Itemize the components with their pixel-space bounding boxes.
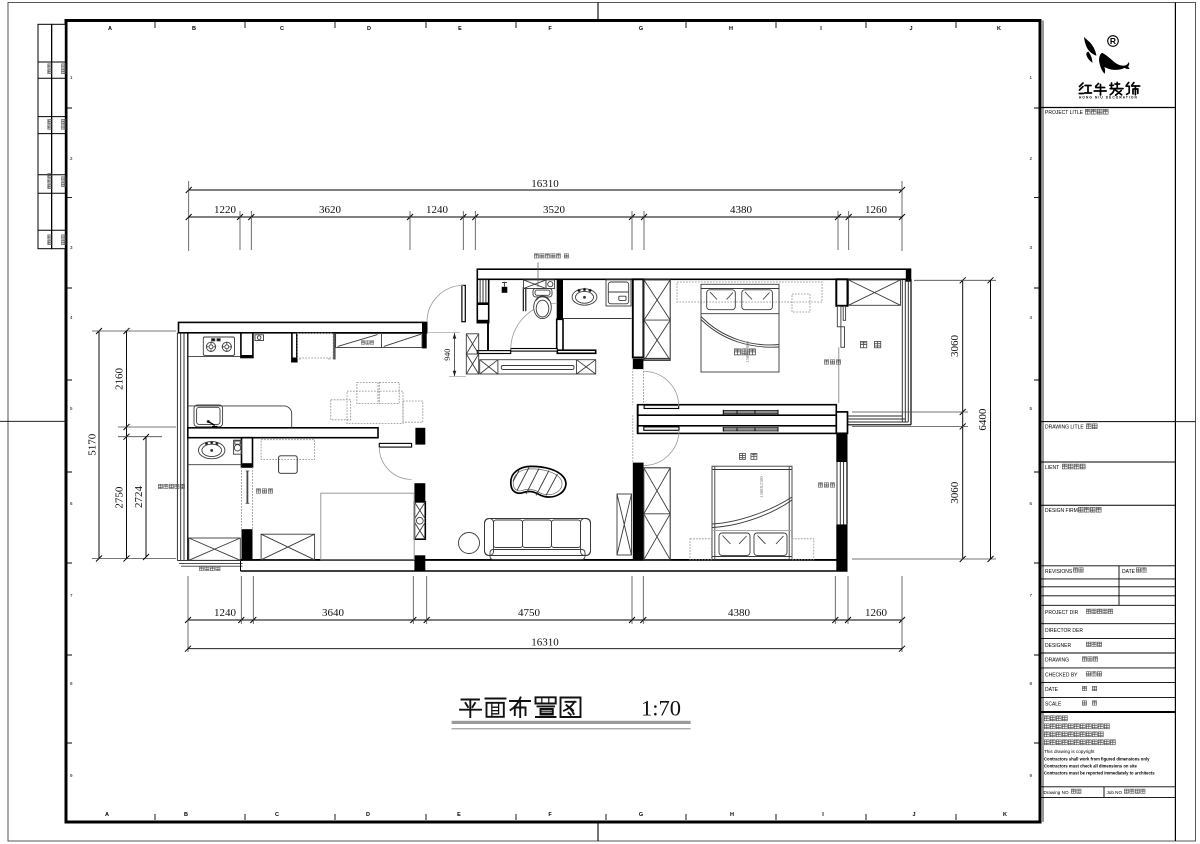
svg-text:5: 5 [1029, 406, 1032, 411]
svg-text:I: I [822, 812, 824, 818]
svg-text:8: 8 [1029, 681, 1032, 686]
svg-text:Contractors shall work from fi: Contractors shall work from figured dime… [1044, 757, 1150, 762]
svg-text:Drawing NO: Drawing NO [1044, 790, 1069, 795]
svg-text:3: 3 [1029, 245, 1032, 250]
svg-text:A: A [105, 812, 109, 818]
svg-text:16310: 16310 [531, 637, 559, 649]
svg-text:J: J [912, 812, 915, 818]
svg-text:Job NO: Job NO [1107, 790, 1123, 795]
svg-text:4: 4 [1029, 315, 1032, 320]
svg-text:1260: 1260 [865, 607, 888, 619]
svg-text:1500X2100: 1500X2100 [759, 476, 764, 498]
svg-text:3520: 3520 [543, 204, 566, 216]
svg-text:5170: 5170 [87, 433, 99, 456]
svg-text:4750: 4750 [518, 607, 541, 619]
svg-text:SCALE: SCALE [1045, 702, 1062, 708]
svg-text:940: 940 [443, 349, 452, 361]
svg-text:16310: 16310 [531, 178, 559, 190]
svg-text:F: F [548, 26, 552, 32]
svg-text:H: H [729, 26, 733, 32]
svg-text:D: D [366, 812, 370, 818]
svg-text:7: 7 [70, 593, 73, 598]
svg-text:1: 1 [1029, 75, 1032, 80]
svg-text:DIRECTOR DER: DIRECTOR DER [1045, 628, 1083, 634]
svg-text:6: 6 [70, 501, 73, 506]
svg-text:R: R [1110, 36, 1116, 46]
svg-text:1260: 1260 [865, 204, 888, 216]
svg-text:DESIGNER: DESIGNER [1045, 643, 1072, 649]
svg-text:PROJECT DIR: PROJECT DIR [1045, 610, 1079, 616]
svg-text:G: G [639, 26, 643, 32]
svg-text:2: 2 [1029, 156, 1032, 161]
svg-text:1220: 1220 [214, 204, 237, 216]
svg-text:LIENT: LIENT [1045, 465, 1059, 471]
svg-text:1240: 1240 [426, 204, 449, 216]
svg-text:CHECKED BY: CHECKED BY [1045, 673, 1078, 679]
svg-text:8: 8 [70, 681, 73, 686]
svg-text:2750: 2750 [114, 486, 126, 509]
svg-text:C: C [275, 812, 279, 818]
svg-text:1500X2000: 1500X2000 [745, 341, 750, 363]
svg-text:1240: 1240 [214, 607, 237, 619]
svg-text:D: D [367, 26, 371, 32]
svg-text:6400: 6400 [977, 408, 989, 431]
svg-text:DESIGN FIRM: DESIGN FIRM [1045, 508, 1078, 514]
svg-text:2160: 2160 [114, 368, 126, 391]
svg-text:K: K [997, 26, 1001, 32]
svg-text:DRAWING: DRAWING [1045, 658, 1069, 664]
svg-text:E: E [457, 812, 461, 818]
svg-text:Contractors must check all dim: Contractors must check all dimensions on… [1044, 764, 1138, 769]
svg-text:H: H [730, 812, 734, 818]
svg-text:1:70: 1:70 [641, 696, 681, 721]
svg-text:1: 1 [70, 75, 73, 80]
svg-text:A: A [108, 26, 112, 32]
svg-text:F: F [548, 812, 552, 818]
svg-text:9: 9 [1029, 773, 1032, 778]
svg-text:HONG NIU DECORATION: HONG NIU DECORATION [1079, 95, 1138, 99]
svg-text:2: 2 [70, 156, 73, 161]
svg-text:DRAWING LITLE: DRAWING LITLE [1045, 425, 1084, 431]
svg-text:5: 5 [70, 406, 73, 411]
svg-text:B: B [192, 26, 196, 32]
svg-text:DATE: DATE [1045, 687, 1059, 693]
svg-text:2724: 2724 [133, 486, 145, 509]
svg-text:4380: 4380 [728, 607, 751, 619]
svg-text:REVISIONS: REVISIONS [1045, 569, 1073, 575]
svg-text:B: B [184, 812, 188, 818]
svg-text:9: 9 [70, 773, 73, 778]
svg-text:C: C [280, 26, 284, 32]
svg-text:I: I [820, 26, 822, 32]
svg-text:3060: 3060 [949, 335, 961, 358]
svg-text:7: 7 [1029, 593, 1032, 598]
svg-text:PROJECT LITLE: PROJECT LITLE [1045, 110, 1084, 116]
svg-text:3: 3 [70, 245, 73, 250]
svg-text:6: 6 [1029, 501, 1032, 506]
svg-text:E: E [458, 26, 462, 32]
svg-text:3060: 3060 [949, 481, 961, 504]
svg-text:G: G [639, 812, 643, 818]
svg-text:DATE: DATE [1122, 569, 1136, 575]
svg-text:J: J [909, 26, 912, 32]
svg-text:K: K [1003, 812, 1007, 818]
svg-text:This drawing is copyright: This drawing is copyright [1044, 749, 1095, 754]
svg-text:Contractors must be reported i: Contractors must be reported immediately… [1044, 771, 1155, 776]
svg-text:3640: 3640 [322, 607, 345, 619]
svg-text:4: 4 [70, 315, 73, 320]
svg-text:4380: 4380 [730, 204, 753, 216]
svg-text:3620: 3620 [319, 204, 342, 216]
